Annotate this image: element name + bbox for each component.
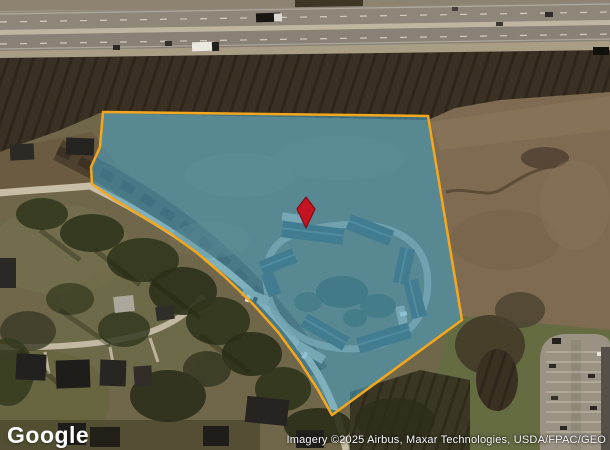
map-canvas[interactable]: Google Imagery ©2025 Airbus, Maxar Techn… <box>0 0 610 450</box>
house-roof <box>56 359 91 388</box>
house-roof <box>133 365 152 386</box>
highway <box>0 0 610 58</box>
map-attribution: Imagery ©2025 Airbus, Maxar Technologies… <box>287 434 607 446</box>
house-roof <box>113 295 135 313</box>
house-roof <box>100 360 127 387</box>
house-roof <box>155 305 175 321</box>
house-roof <box>15 353 46 381</box>
house-roof <box>203 426 229 446</box>
house-roof <box>90 427 120 447</box>
house-roof <box>10 143 35 160</box>
house-roof <box>0 258 16 288</box>
house-roof <box>66 138 95 156</box>
house-roof <box>245 396 289 426</box>
satellite-imagery <box>0 0 610 450</box>
google-logo[interactable]: Google <box>7 422 89 449</box>
